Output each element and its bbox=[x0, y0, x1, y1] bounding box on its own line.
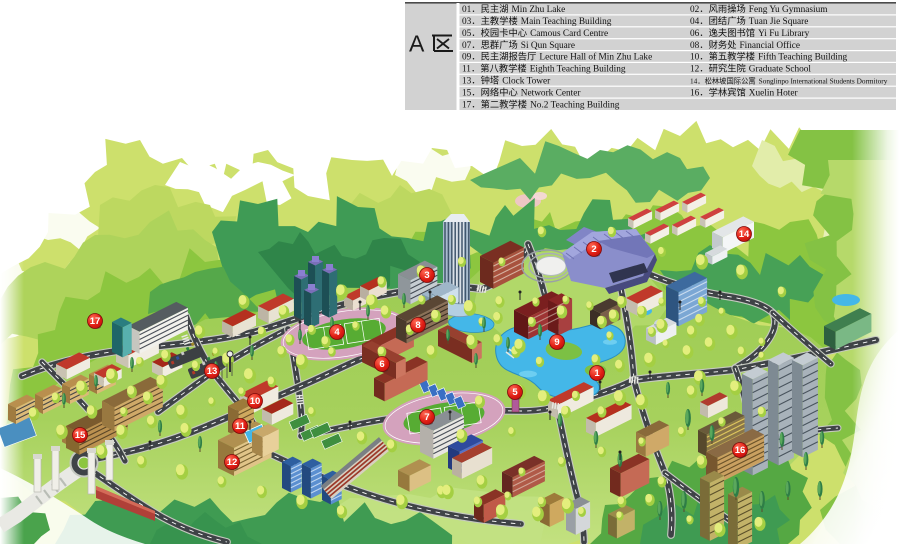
svg-text:15: 15 bbox=[75, 430, 86, 441]
svg-text:10: 10 bbox=[250, 396, 261, 407]
svg-text:11: 11 bbox=[235, 421, 246, 432]
svg-text:09．民主湖报告厅Lecture Hall of Min Z: 09．民主湖报告厅Lecture Hall of Min Zhu Lake bbox=[462, 51, 652, 63]
svg-text:06．逸夫图书馆Yi Fu Library: 06．逸夫图书馆Yi Fu Library bbox=[690, 27, 810, 39]
svg-text:12: 12 bbox=[227, 457, 238, 468]
svg-text:13: 13 bbox=[207, 366, 218, 377]
svg-text:8: 8 bbox=[415, 320, 420, 331]
svg-text:03．主教学楼Main Teaching Building: 03．主教学楼Main Teaching Building bbox=[462, 15, 612, 27]
svg-text:15．网络中心Network Center: 15．网络中心Network Center bbox=[462, 86, 581, 98]
svg-text:4: 4 bbox=[334, 327, 340, 338]
svg-text:11．第八教学楼Eighth Teaching Buildi: 11．第八教学楼Eighth Teaching Building bbox=[462, 63, 626, 75]
svg-text:17．第二教学楼No.2 Teaching Building: 17．第二教学楼No.2 Teaching Building bbox=[462, 98, 620, 110]
svg-text:05．校园卡中心Camous Card Centre: 05．校园卡中心Camous Card Centre bbox=[462, 27, 608, 39]
svg-text:04．团结广场Tuan Jie Square: 04．团结广场Tuan Jie Square bbox=[690, 15, 808, 27]
svg-text:14．松林坡国际公寓Songlinpo Internatio: 14．松林坡国际公寓Songlinpo International Studen… bbox=[690, 77, 888, 86]
svg-text:12．研究生院Graduate School: 12．研究生院Graduate School bbox=[690, 63, 811, 75]
svg-text:2: 2 bbox=[591, 244, 596, 255]
svg-text:14: 14 bbox=[739, 229, 750, 240]
svg-text:5: 5 bbox=[512, 387, 518, 398]
svg-text:7: 7 bbox=[424, 412, 429, 423]
svg-text:13．钟塔Clock Tower: 13．钟塔Clock Tower bbox=[462, 75, 551, 87]
svg-text:3: 3 bbox=[424, 270, 429, 281]
svg-text:16．学林宾馆Xuelin Hoter: 16．学林宾馆Xuelin Hoter bbox=[690, 86, 798, 98]
svg-text:02．风雨操场Feng Yu Gymnasium: 02．风雨操场Feng Yu Gymnasium bbox=[690, 3, 828, 15]
svg-text:9: 9 bbox=[554, 337, 559, 348]
svg-text:17: 17 bbox=[90, 316, 101, 327]
svg-text:1: 1 bbox=[594, 368, 600, 379]
svg-text:08．财务处Financial Office: 08．财务处Financial Office bbox=[690, 39, 800, 51]
svg-text:A: A bbox=[409, 31, 425, 57]
svg-text:01．民主湖Min Zhu Lake: 01．民主湖Min Zhu Lake bbox=[462, 3, 565, 15]
svg-text:16: 16 bbox=[735, 445, 746, 456]
svg-text:10．第五教学楼Fifth Teaching Buildin: 10．第五教学楼Fifth Teaching Building bbox=[690, 51, 847, 63]
svg-text:6: 6 bbox=[379, 359, 384, 370]
